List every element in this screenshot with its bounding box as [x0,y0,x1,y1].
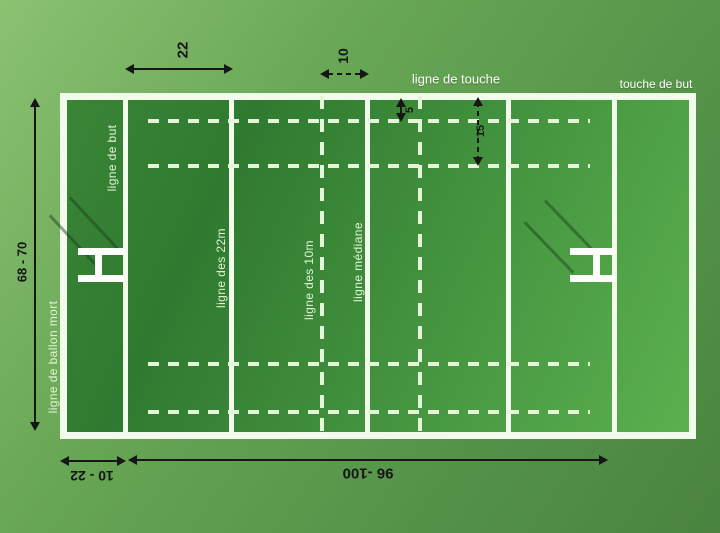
10m-line-right [418,96,422,436]
arrow-head-icon [60,456,69,466]
dim-label-pitch-length: 96 -100 [343,465,394,482]
arrow-head-icon [30,422,40,431]
arrow-head-icon [224,64,233,74]
goal-post-left-crossbar [95,248,102,282]
dim-label-5: 5 [404,107,416,113]
5m-dash-line-top [148,119,590,123]
arrow-head-icon [473,97,483,106]
label-touch-line: ligne de touche [412,72,500,87]
label-goal-line: ligne de but [105,125,119,192]
5m-dash-line-bottom [148,410,590,414]
label-dead-ball-line: ligne de ballon mort [46,301,60,414]
arrow-head-icon [117,456,126,466]
arrow-head-icon [125,64,134,74]
arrow-head-icon [320,69,329,79]
dim-label-pitch-width: 68 - 70 [15,242,30,282]
22m-line-left [229,93,234,439]
arrow-head-icon [396,113,406,122]
label-22m-line: ligne des 22m [214,228,228,308]
arrow-head-icon [599,455,608,465]
dim-label-in-goal-depth: 10 - 22 [70,468,114,484]
dim-label-10: 10 [335,48,351,64]
goal-post-right-crossbar [593,248,600,282]
playing-field [60,93,696,439]
22m-line-right [506,93,511,439]
dim-label-15: 15 [475,125,487,137]
halfway-line [365,93,370,439]
dim-label-22: 22 [175,42,192,59]
label-in-goal-touch-line: touche de but [620,77,693,91]
15m-dash-line-bottom [148,362,590,366]
arrow-head-icon [360,69,369,79]
label-10m-line: ligne des 10m [302,240,316,320]
label-halfway-line: ligne médiane [351,222,365,302]
rugby-pitch-diagram: ligne de touche touche de but ligne de b… [0,0,720,533]
arrow-head-icon [396,98,406,107]
goal-line-left [123,93,128,439]
goal-line-right [612,93,617,439]
10m-line-left [320,96,324,436]
arrow-head-icon [473,157,483,166]
15m-dash-line-top [148,164,590,168]
arrow-head-icon [30,98,40,107]
arrow-head-icon [128,455,137,465]
